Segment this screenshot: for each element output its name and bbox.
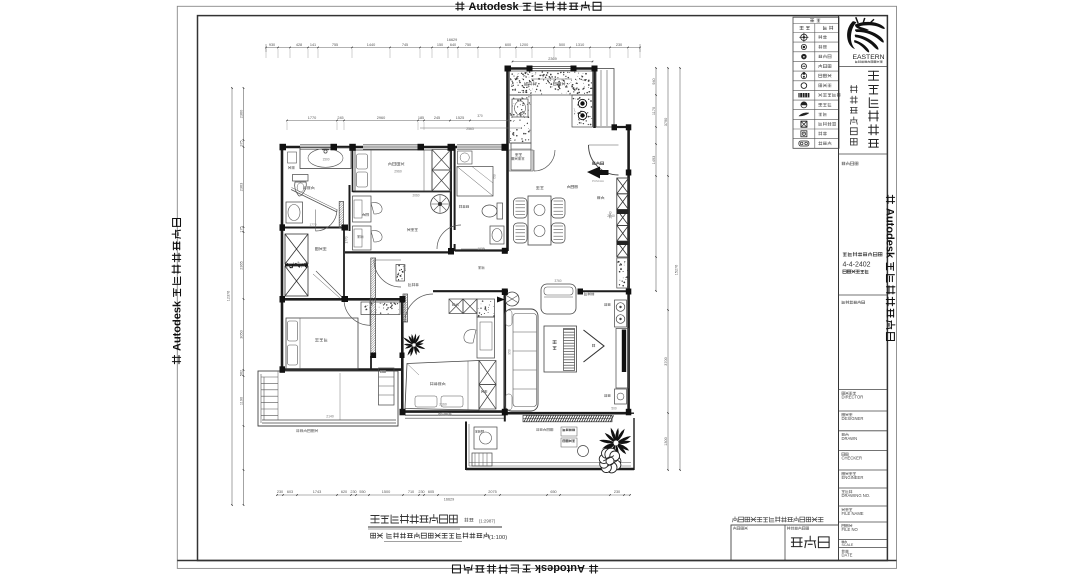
svg-text:750: 750 [493,174,497,180]
svg-text:230: 230 [614,490,620,494]
svg-text:1500: 1500 [322,158,329,162]
svg-text:2365: 2365 [239,261,243,269]
svg-text:3700: 3700 [664,357,668,365]
svg-text:(1:2987): (1:2987) [479,519,496,524]
svg-text:2075: 2075 [488,490,496,494]
svg-text:Autodesk: Autodesk [469,1,520,13]
svg-text:500: 500 [611,407,617,411]
svg-text:640: 640 [450,43,456,47]
svg-text:620: 620 [341,490,347,494]
svg-text:2160: 2160 [439,403,447,407]
svg-text:185: 185 [418,116,424,120]
svg-text:CHECKER: CHECKER [842,456,862,461]
svg-text:1493: 1493 [652,156,656,164]
svg-text:2369: 2369 [548,57,556,61]
svg-text:16629: 16629 [444,498,455,502]
svg-text:605: 605 [428,490,434,494]
svg-text:DESIGNER: DESIGNER [842,416,864,421]
svg-text:141: 141 [310,43,316,47]
svg-text:4-4-2402: 4-4-2402 [843,262,871,269]
svg-text:245: 245 [434,116,440,120]
svg-text:175: 175 [239,226,243,232]
svg-text:2540: 2540 [609,211,613,218]
svg-text:600: 600 [505,43,511,47]
svg-text:FILE NO: FILE NO [842,527,859,532]
svg-text:16629: 16629 [447,38,458,42]
svg-text:2960: 2960 [394,170,402,174]
svg-text:DRAWN: DRAWN [842,436,858,441]
svg-text:1770: 1770 [308,116,316,120]
svg-text:950: 950 [508,349,512,355]
svg-text:428: 428 [296,43,302,47]
svg-text:230: 230 [277,490,283,494]
svg-text:230: 230 [418,490,424,494]
svg-text:562: 562 [239,370,243,376]
svg-text:750: 750 [465,43,471,47]
svg-text:1200: 1200 [520,43,528,47]
svg-text:3760: 3760 [554,279,561,283]
svg-text:370: 370 [477,114,483,118]
svg-text:1170: 1170 [652,107,656,115]
svg-text:1743: 1743 [313,490,321,494]
svg-text:15276: 15276 [675,265,679,276]
svg-text:DIRECTOR: DIRECTOR [842,395,864,400]
svg-text:755: 755 [332,43,338,47]
svg-text:Autodesk: Autodesk [534,562,585,574]
svg-text:1770: 1770 [310,223,317,227]
svg-text:1190: 1190 [239,397,243,405]
svg-text:1770: 1770 [345,236,349,243]
svg-text:1310: 1310 [576,43,584,47]
svg-text:1300: 1300 [664,437,668,445]
svg-text:2563: 2563 [466,127,474,131]
svg-text:930: 930 [269,43,275,47]
svg-text:SCALE: SCALE [842,543,854,547]
svg-text:1525: 1525 [456,116,464,120]
svg-text:PUSCHA: PUSCHA [592,179,604,183]
svg-text:Autodesk: Autodesk [171,300,183,351]
svg-text:940: 940 [652,78,656,84]
svg-text:550: 550 [359,490,365,494]
svg-text:1038: 1038 [477,247,484,251]
svg-text:3050: 3050 [239,330,243,338]
svg-text:1500: 1500 [382,490,390,494]
svg-text:230: 230 [350,490,356,494]
svg-text:3790: 3790 [664,118,668,126]
svg-text:2140: 2140 [326,415,334,419]
svg-text:603: 603 [287,490,293,494]
svg-text:2960: 2960 [377,116,385,120]
svg-text:EASTERN: EASTERN [852,54,884,61]
svg-text:1440: 1440 [367,43,375,47]
svg-text:FILE NAME: FILE NAME [842,511,864,516]
svg-text:245: 245 [337,116,343,120]
svg-text:650: 650 [550,490,556,494]
svg-text:500: 500 [559,43,565,47]
svg-text:DATE: DATE [842,553,853,558]
svg-text:2060: 2060 [412,194,419,198]
svg-text:150: 150 [437,43,443,47]
svg-text:DRAWING NO.: DRAWING NO. [842,493,871,498]
svg-text:Autodesk: Autodesk [884,208,896,259]
svg-text:710: 710 [408,490,414,494]
svg-text:1038: 1038 [403,264,407,271]
svg-text:375: 375 [239,140,243,146]
svg-text:ENGINEER: ENGINEER [842,475,864,480]
svg-text:2363: 2363 [239,183,243,191]
svg-text:230: 230 [616,43,622,47]
svg-text:2360: 2360 [239,110,243,118]
svg-text:745: 745 [402,43,408,47]
svg-text:12376: 12376 [227,291,231,302]
svg-text:(1:100): (1:100) [489,535,507,541]
